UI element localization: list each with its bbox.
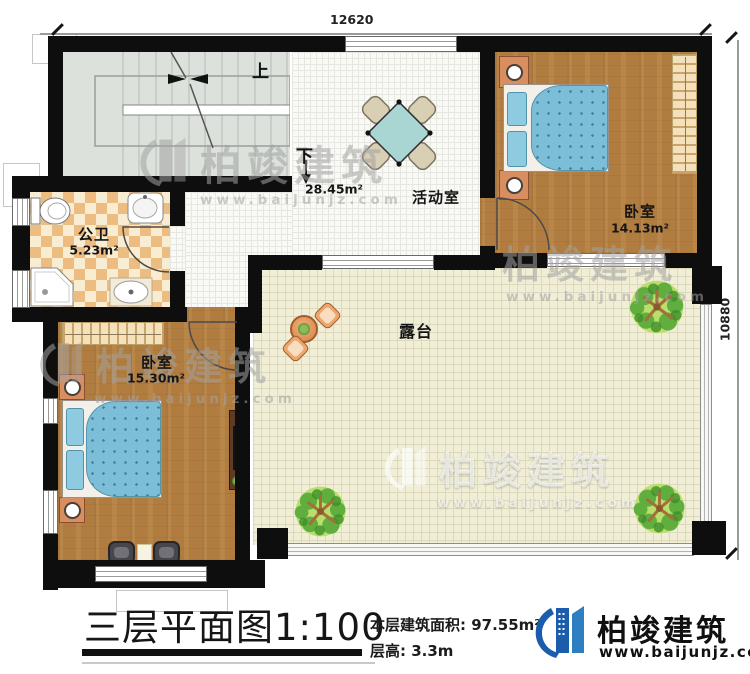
sliding-door xyxy=(322,255,434,269)
terrace-label: 露台 xyxy=(399,318,433,342)
nightstand xyxy=(59,497,85,523)
window xyxy=(43,490,58,534)
pillow xyxy=(507,131,527,167)
dimension-tick xyxy=(725,31,738,44)
window xyxy=(95,566,207,582)
wardrobe xyxy=(62,322,164,345)
door-opening xyxy=(480,198,495,246)
door-opening xyxy=(170,226,185,271)
dimension-line-top xyxy=(40,33,712,35)
wall xyxy=(48,36,63,188)
pillar xyxy=(692,521,726,555)
bedroom-bottom-area: 15.30m² xyxy=(127,371,185,386)
title-underline xyxy=(82,649,362,656)
wall xyxy=(692,266,722,304)
floor-plan-canvas: 12620 10880 xyxy=(0,0,750,674)
wall xyxy=(457,36,712,52)
window xyxy=(345,36,457,52)
pillow xyxy=(507,92,527,126)
bedroom-top-label: 卧室 xyxy=(624,201,656,222)
bedroom-top-area: 14.13m² xyxy=(611,221,669,236)
title-underline-thin xyxy=(82,662,375,664)
activity-room-area: 28.45m² xyxy=(305,182,363,197)
dimension-line-right xyxy=(737,40,739,560)
nightstand xyxy=(59,374,85,400)
blanket xyxy=(86,401,161,497)
bathroom-area: 5.23m² xyxy=(69,243,118,258)
pillow xyxy=(66,408,84,446)
sliding-door xyxy=(547,253,665,267)
activity-room-floor xyxy=(185,255,248,307)
plan-specs: 本层建筑面积: 97.55m² 层高: 3.3m xyxy=(370,612,541,664)
stairs-down-label: 下 xyxy=(296,142,313,167)
floor-area-text: 本层建筑面积: 97.55m² xyxy=(370,612,541,638)
pillow xyxy=(66,450,84,490)
activity-room-floor xyxy=(185,192,292,255)
wardrobe xyxy=(672,54,697,174)
window xyxy=(12,270,30,308)
wall xyxy=(250,255,322,270)
stairs-up-label: 上 xyxy=(252,57,269,82)
window xyxy=(12,198,30,226)
wall xyxy=(43,307,58,590)
pillar xyxy=(257,528,288,559)
terrace-railing xyxy=(700,304,712,545)
dining-table-set xyxy=(352,86,446,180)
wall xyxy=(48,36,345,52)
wall xyxy=(170,176,185,226)
wall xyxy=(697,36,712,270)
tree xyxy=(632,481,687,536)
bedroom-bottom-label: 卧室 xyxy=(141,352,173,373)
dimension-tick xyxy=(725,547,738,560)
activity-room-label: 活动室 xyxy=(412,187,460,208)
wall xyxy=(480,253,547,268)
bathroom-label: 公卫 xyxy=(78,224,110,245)
window xyxy=(43,398,58,424)
floor-height-text: 层高: 3.3m xyxy=(370,638,541,664)
door-opening xyxy=(187,307,237,322)
wall xyxy=(12,307,187,322)
dimension-label-top: 12620 xyxy=(330,12,374,27)
wall xyxy=(235,307,250,560)
company-logo-icon xyxy=(534,602,590,662)
company-website: www.baijunjz.com xyxy=(599,643,750,661)
tree xyxy=(628,278,686,336)
blanket xyxy=(531,85,608,171)
plan-title: 三层平面图1:100 xyxy=(84,597,386,651)
tree xyxy=(293,484,348,539)
terrace-railing xyxy=(286,543,694,556)
wall xyxy=(665,253,712,268)
nightstand xyxy=(499,170,529,200)
side-table xyxy=(137,544,152,561)
wall xyxy=(12,176,292,192)
wall xyxy=(480,36,495,198)
